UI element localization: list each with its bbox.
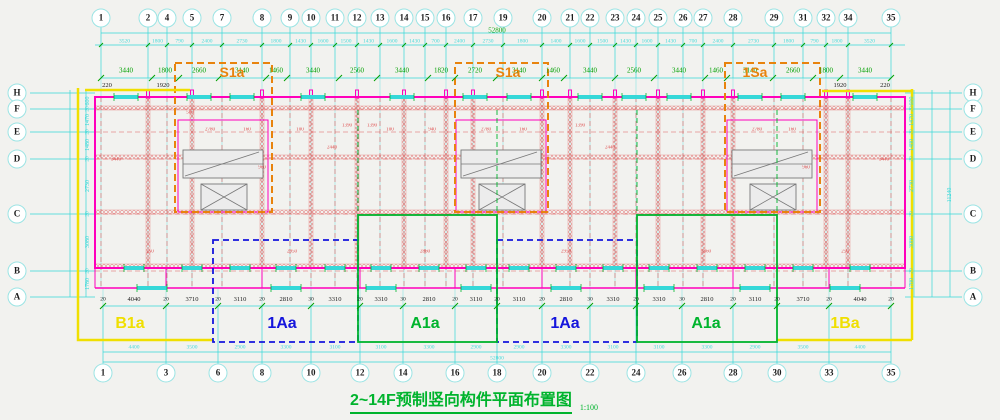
- grid-bubble-top: 16: [437, 9, 456, 28]
- dim-bottom-main: 2810: [560, 297, 573, 304]
- grid-bubble-top: 1: [92, 9, 111, 28]
- grid-bubble-top: 21: [561, 9, 580, 28]
- dim-interior: 580: [186, 111, 194, 116]
- dim-side-left: 600: [85, 97, 91, 106]
- grid-bubble-bottom: 35: [882, 364, 901, 383]
- dim-bottom-fine: 3500: [798, 345, 809, 351]
- dim-side-joint-left: 20: [85, 106, 91, 112]
- dim-bottom-joint: 20: [730, 297, 736, 303]
- dim-top-main: 1800: [158, 68, 172, 75]
- dim-top-main: 2560: [350, 68, 364, 75]
- window: [325, 266, 345, 270]
- hatched-wall: [444, 97, 448, 268]
- window: [230, 266, 250, 270]
- grid-bubble-top: 19: [494, 9, 513, 28]
- window: [419, 266, 439, 270]
- dim-top-main: 1460: [546, 68, 560, 75]
- dim-top-total: 52800: [488, 28, 506, 35]
- grid-bubble-bottom: 30: [768, 364, 787, 383]
- grid-bubble-top: 29: [765, 9, 784, 28]
- dim-top-fine: 1400: [551, 39, 562, 45]
- grid-bubble-top: 22: [581, 9, 600, 28]
- dim-top-fine: 1600: [575, 39, 586, 45]
- dim-bottom-fine: 3300: [424, 345, 435, 351]
- dim-bottom-joint: 20: [100, 297, 106, 303]
- dim-side-joint-right: 20: [909, 156, 915, 162]
- dim-bottom-fine: 3500: [187, 345, 198, 351]
- dim-bottom-fine: 3300: [281, 345, 292, 351]
- dim-top-main: 3440: [858, 68, 872, 75]
- window: [366, 286, 396, 290]
- dim-top-fine: 2730: [483, 39, 494, 45]
- dim-top-fine: 1430: [620, 39, 631, 45]
- dim-top-fine: 1800: [832, 39, 843, 45]
- window: [124, 266, 144, 270]
- grid-bubble-bottom: 3: [157, 364, 176, 383]
- dim-top-main: 3440: [306, 68, 320, 75]
- row-bubble-left: E: [8, 123, 27, 142]
- dim-bottom-joint: 30: [587, 297, 593, 303]
- dim-bottom-joint: 20: [633, 297, 639, 303]
- window: [738, 95, 762, 99]
- hatched-wall: [824, 97, 828, 268]
- dim-side-left: 1780: [85, 278, 91, 290]
- dim-bottom-main: 3110: [234, 297, 247, 304]
- hatched-wall: [309, 97, 313, 268]
- grid-bubble-bottom: 24: [627, 364, 646, 383]
- grid-bubble-top: 27: [694, 9, 713, 28]
- dim-offset: 1920: [834, 83, 847, 90]
- hatched-wall: [95, 106, 905, 110]
- dim-side-joint-right: 20: [909, 129, 915, 135]
- unit-zone-label: A1a: [691, 316, 720, 332]
- grid-bubble-bottom: 14: [394, 364, 413, 383]
- dim-offset: 220: [880, 83, 890, 90]
- dim-bottom-fine: 3100: [654, 345, 665, 351]
- window: [187, 95, 211, 99]
- window: [556, 266, 576, 270]
- floor-plan-drawing: 1245789101112131415161719202122232425262…: [0, 0, 1000, 420]
- dim-top-fine: 1600: [318, 39, 329, 45]
- dim-top-main: 2560: [627, 68, 641, 75]
- dim-bottom-fine: 3300: [702, 345, 713, 351]
- dim-bottom-joint: 30: [308, 297, 314, 303]
- dim-side-right: 1780: [909, 278, 915, 290]
- row-bubble-left: D: [8, 150, 27, 169]
- dim-interior: 2860: [420, 250, 430, 255]
- window: [622, 95, 646, 99]
- exterior-wall: [95, 97, 905, 268]
- dim-bottom-joint: 30: [400, 297, 406, 303]
- window: [507, 95, 531, 99]
- grid-bubble-top: 12: [348, 9, 367, 28]
- window: [466, 266, 486, 270]
- dim-side-joint-right: 20: [909, 211, 915, 217]
- dim-side-left: 1470: [85, 114, 91, 126]
- unit-zone-label: 1Aa: [267, 316, 296, 332]
- window: [793, 266, 813, 270]
- grid-bubble-bottom: 26: [673, 364, 692, 383]
- window: [461, 286, 491, 290]
- dim-top-fine: 790: [175, 39, 183, 45]
- dim-top-main: 1460: [269, 68, 283, 75]
- dim-interior: 100: [296, 128, 304, 133]
- dim-side-right: 1480: [909, 139, 915, 151]
- dim-offset: 220: [102, 83, 112, 90]
- unit-zone-label: A1a: [410, 316, 439, 332]
- row-bubble-left: A: [8, 288, 27, 307]
- dim-interior: 2780: [205, 128, 215, 133]
- dim-bottom-main: 3110: [513, 297, 526, 304]
- grid-bubble-top: 7: [213, 9, 232, 28]
- dim-interior: 2950: [287, 250, 297, 255]
- unit-zone-label: 1Ba: [830, 316, 859, 332]
- row-bubble-left: F: [8, 100, 27, 119]
- dim-top-fine: 1800: [271, 39, 282, 45]
- grid-bubble-top: 5: [183, 9, 202, 28]
- window: [781, 95, 805, 99]
- dim-interior: 3440: [111, 158, 121, 163]
- dim-top-main: 1460: [709, 68, 723, 75]
- dim-bottom-fine: 3100: [330, 345, 341, 351]
- dim-top-main: 2660: [192, 68, 206, 75]
- row-bubble-left: C: [8, 205, 27, 224]
- window: [371, 266, 391, 270]
- dim-top-fine: 1430: [295, 39, 306, 45]
- grid-bubble-bottom: 12: [351, 364, 370, 383]
- drawing-title: 2~14F预制竖向构件平面布置图: [350, 392, 572, 414]
- hatched-wall: [540, 97, 544, 268]
- grid-bubble-top: 24: [627, 9, 646, 28]
- row-bubble-left: B: [8, 262, 27, 281]
- title-block: 2~14F预制竖向构件平面布置图 1:100: [350, 392, 598, 414]
- dim-top-main: 3440: [119, 68, 133, 75]
- dim-side-left: 3080: [85, 236, 91, 248]
- grid-bubble-top: 2: [139, 9, 158, 28]
- grid-bubble-top: 28: [724, 9, 743, 28]
- dim-top-main: 3440: [583, 68, 597, 75]
- dim-interior: 940: [428, 128, 436, 133]
- window: [463, 95, 487, 99]
- dim-side-left: 1480: [85, 139, 91, 151]
- window: [137, 286, 167, 290]
- dim-top-fine: 1800: [783, 39, 794, 45]
- dim-interior: 3440: [879, 158, 889, 163]
- dim-bottom-main: 3310: [653, 297, 666, 304]
- dim-bottom-main: 2810: [280, 297, 293, 304]
- window: [271, 286, 301, 290]
- row-bubble-right: F: [964, 100, 983, 119]
- dim-interior: 2440: [605, 146, 615, 151]
- window: [745, 266, 765, 270]
- dim-bottom-fine: 3300: [561, 345, 572, 351]
- grid-bubble-top: 11: [326, 9, 345, 28]
- dim-interior: 2780: [752, 128, 762, 133]
- grid-bubble-bottom: 1: [94, 364, 113, 383]
- dim-bottom-main: 3110: [470, 297, 483, 304]
- window: [114, 95, 138, 99]
- row-bubble-right: D: [964, 150, 983, 169]
- dim-bottom-fine: 2900: [514, 345, 525, 351]
- dim-bottom-joint: 20: [888, 297, 894, 303]
- dim-bottom-fine: 4400: [129, 345, 140, 351]
- dim-bottom-main: 3310: [375, 297, 388, 304]
- grid-bubble-top: 8: [253, 9, 272, 28]
- dim-side-joint-left: 20: [85, 129, 91, 135]
- dim-interior: 960: [258, 166, 266, 171]
- grid-bubble-bottom: 6: [209, 364, 228, 383]
- hatched-wall: [471, 97, 475, 268]
- dim-interior: 160: [519, 128, 527, 133]
- dim-bottom-joint: 20: [774, 297, 780, 303]
- grid-bubble-top: 25: [649, 9, 668, 28]
- grid-bubble-bottom: 18: [488, 364, 507, 383]
- dim-top-fine: 1500: [597, 39, 608, 45]
- dim-side-joint-right: 20: [909, 268, 915, 274]
- core-label: S1a: [220, 65, 245, 79]
- dim-top-main: 1800: [819, 68, 833, 75]
- dim-top-fine: 790: [810, 39, 818, 45]
- dim-interior: 160: [788, 128, 796, 133]
- dim-top-fine: 700: [431, 39, 439, 45]
- dim-bottom-joint: 20: [259, 297, 265, 303]
- dim-interior: 2440: [327, 146, 337, 151]
- grid-bubble-top: 23: [606, 9, 625, 28]
- dim-bottom-fine: 3100: [376, 345, 387, 351]
- window: [644, 286, 674, 290]
- dim-top-main: 2660: [786, 68, 800, 75]
- dim-interior: 250: [841, 250, 849, 255]
- dim-side-right: 1470: [909, 114, 915, 126]
- core-label: S1a: [496, 65, 521, 79]
- dim-bottom-main: 3710: [186, 297, 199, 304]
- grid-bubble-top: 9: [281, 9, 300, 28]
- core-label: 1Sa: [743, 65, 768, 79]
- dim-top-fine: 1600: [642, 39, 653, 45]
- dim-top-fine: 2730: [237, 39, 248, 45]
- grid-bubble-top: 10: [302, 9, 321, 28]
- hatched-wall: [402, 97, 406, 268]
- dim-top-fine: 1430: [409, 39, 420, 45]
- window: [276, 266, 296, 270]
- window: [301, 95, 325, 99]
- dim-interior: 250: [146, 250, 154, 255]
- dim-interior: 160: [243, 128, 251, 133]
- dim-bottom-main: 4040: [854, 297, 867, 304]
- grid-bubble-top: 14: [395, 9, 414, 28]
- dim-bottom-joint: 20: [215, 297, 221, 303]
- grid-bubble-bottom: 10: [302, 364, 321, 383]
- grid-bubble-top: 35: [882, 9, 901, 28]
- dim-side-total: 11240: [947, 188, 953, 203]
- grid-bubble-top: 31: [794, 9, 813, 28]
- dim-top-fine: 2400: [202, 39, 213, 45]
- grid-bubble-top: 13: [371, 9, 390, 28]
- dim-top-main: 3440: [395, 68, 409, 75]
- dim-interior: 1390: [575, 124, 585, 129]
- dim-interior: 960: [802, 166, 810, 171]
- dim-interior: 1390: [342, 124, 352, 129]
- dim-top-main: 2720: [468, 68, 482, 75]
- hatched-wall: [701, 97, 705, 268]
- dim-offset: 1920: [157, 83, 170, 90]
- dim-bottom-joint: 20: [826, 297, 832, 303]
- window: [182, 266, 202, 270]
- hatched-wall: [846, 97, 850, 268]
- window: [667, 95, 691, 99]
- dim-top-fine: 2730: [748, 39, 759, 45]
- dim-bottom-joint: 20: [452, 297, 458, 303]
- window: [578, 95, 602, 99]
- row-bubble-right: E: [964, 123, 983, 142]
- grid-bubble-bottom: 22: [581, 364, 600, 383]
- window: [853, 95, 877, 99]
- hatched-wall: [190, 97, 194, 268]
- row-bubble-right: C: [964, 205, 983, 224]
- hatched-wall: [568, 97, 572, 268]
- dim-top-fine: 1600: [387, 39, 398, 45]
- dim-top-fine: 1800: [517, 39, 528, 45]
- dim-bottom-main: 3310: [329, 297, 342, 304]
- row-bubble-right: B: [964, 262, 983, 281]
- drawing-scale: 1:100: [580, 403, 598, 414]
- dim-top-fine: 3520: [119, 39, 130, 45]
- window: [603, 266, 623, 270]
- dim-side-right: 3080: [909, 236, 915, 248]
- dim-interior: 100: [386, 128, 394, 133]
- hatched-wall: [613, 97, 617, 268]
- dim-bottom-joint: 30: [679, 297, 685, 303]
- dim-bottom-fine: 3100: [608, 345, 619, 351]
- hatched-wall: [146, 97, 150, 268]
- window: [551, 286, 581, 290]
- dim-bottom-main: 3110: [749, 297, 762, 304]
- grid-bubble-top: 26: [674, 9, 693, 28]
- dim-top-fine: 1500: [341, 39, 352, 45]
- row-bubble-right: A: [964, 288, 983, 307]
- dim-top-fine: 2400: [454, 39, 465, 45]
- dim-bottom-fine: 4400: [855, 345, 866, 351]
- dim-bottom-main: 2810: [701, 297, 714, 304]
- window: [697, 266, 717, 270]
- grid-bubble-top: 17: [464, 9, 483, 28]
- dim-bottom-joint: 20: [494, 297, 500, 303]
- dim-top-main: 1820: [434, 68, 448, 75]
- grid-bubble-top: 34: [839, 9, 858, 28]
- unit-zone-label: B1a: [115, 316, 144, 332]
- dim-top-fine: 1430: [665, 39, 676, 45]
- grid-bubble-bottom: 33: [820, 364, 839, 383]
- dim-bottom-total: 52800: [490, 356, 504, 362]
- grid-bubble-top: 32: [817, 9, 836, 28]
- window: [649, 266, 669, 270]
- dim-top-fine: 1800: [152, 39, 163, 45]
- dim-top-fine: 3520: [864, 39, 875, 45]
- grid-bubble-top: 20: [533, 9, 552, 28]
- hatched-wall: [731, 97, 735, 268]
- dim-bottom-joint: 20: [539, 297, 545, 303]
- dim-bottom-joint: 20: [163, 297, 169, 303]
- dim-side-joint-right: 20: [909, 106, 915, 112]
- dim-side-left: 2730: [85, 180, 91, 192]
- dim-side-right: 600: [909, 97, 915, 106]
- grid-bubble-bottom: 8: [253, 364, 272, 383]
- dim-top-fine: 2400: [713, 39, 724, 45]
- dim-side-joint-left: 20: [85, 156, 91, 162]
- dim-interior: 2780: [481, 128, 491, 133]
- window: [230, 95, 254, 99]
- dim-bottom-joint: 20: [357, 297, 363, 303]
- dim-bottom-main: 3710: [797, 297, 810, 304]
- dim-bottom-fine: 2900: [750, 345, 761, 351]
- window: [740, 286, 770, 290]
- window: [509, 266, 529, 270]
- hatched-wall: [260, 97, 264, 268]
- dim-side-right: 2730: [909, 180, 915, 192]
- dim-bottom-main: 4040: [128, 297, 141, 304]
- grid-bubble-top: 15: [416, 9, 435, 28]
- grid-bubble-bottom: 28: [724, 364, 743, 383]
- dim-interior: 2950: [561, 250, 571, 255]
- window: [830, 286, 860, 290]
- grid-bubble-top: 4: [158, 9, 177, 28]
- grid-bubble-bottom: 20: [533, 364, 552, 383]
- dim-interior: 2860: [701, 250, 711, 255]
- hatched-wall: [656, 97, 660, 268]
- dim-bottom-main: 3310: [607, 297, 620, 304]
- dim-top-fine: 700: [689, 39, 697, 45]
- dim-bottom-main: 2810: [423, 297, 436, 304]
- window: [390, 95, 414, 99]
- dim-interior: 1390: [367, 124, 377, 129]
- dim-side-joint-left: 20: [85, 211, 91, 217]
- dim-side-joint-left: 20: [85, 268, 91, 274]
- dim-top-fine: 1430: [363, 39, 374, 45]
- grid-bubble-bottom: 16: [446, 364, 465, 383]
- unit-zone-label: 1Aa: [550, 316, 579, 332]
- dim-bottom-fine: 2900: [471, 345, 482, 351]
- dim-top-main: 3440: [672, 68, 686, 75]
- window: [850, 266, 870, 270]
- dim-bottom-fine: 2900: [235, 345, 246, 351]
